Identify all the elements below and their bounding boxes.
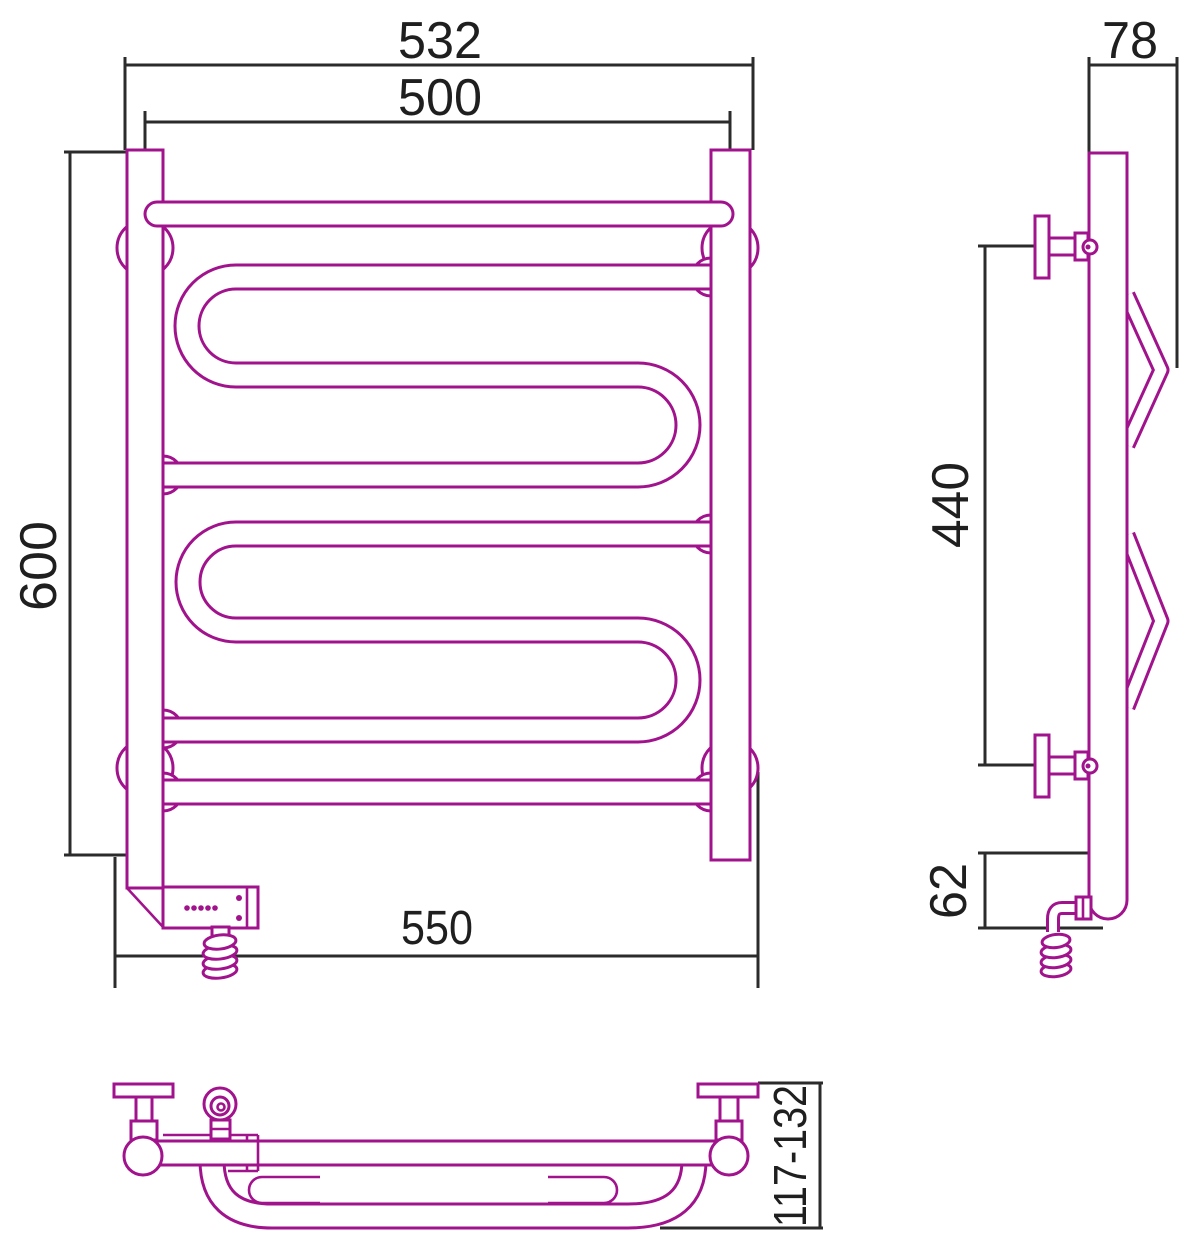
bottom-plan-view: [114, 1084, 758, 1216]
plan-bracket-right: [698, 1084, 758, 1140]
knob-dot: [1086, 764, 1091, 769]
dim-front-bracket-span-label: 550: [401, 902, 473, 955]
side-collector-tube: [1089, 153, 1127, 919]
screw-dot: [236, 915, 242, 921]
control-box: [127, 887, 258, 936]
towel-rail-drawing: 532 500 600 550 78 440 62 117-132: [0, 0, 1200, 1248]
left-collector: [127, 150, 163, 888]
power-cable-coil: [202, 933, 237, 980]
lower-serpentine: [163, 534, 711, 730]
screw-dot: [236, 895, 242, 901]
dim-front-overall-width-label: 532: [398, 12, 482, 70]
plan-serpentine-loop: [212, 1160, 694, 1216]
knob-dot: [1086, 245, 1091, 250]
technical-drawing-page: 532 500 600 550 78 440 62 117-132: [0, 0, 1200, 1248]
dim-side-bottom-offset-label: 62: [920, 863, 978, 919]
wall-bracket-bottom: [1035, 735, 1088, 797]
dim-bottom-depth-range-label: 117-132: [764, 1085, 816, 1227]
plan-left-collector: [124, 1137, 162, 1175]
side-serpentine-loops: [1127, 295, 1161, 707]
front-view: [117, 150, 758, 980]
plan-right-collector: [710, 1137, 748, 1175]
dim-front-height-label: 600: [10, 521, 68, 611]
side-cable-coil: [1040, 933, 1071, 978]
plan-cable-coil: [204, 1088, 236, 1139]
wall-bracket-top: [1035, 216, 1088, 278]
dim-side-bracket-spacing-label: 440: [922, 462, 980, 548]
dim-side-top-depth-label: 78: [1102, 12, 1158, 70]
plan-bracket-left: [114, 1084, 173, 1140]
upper-serpentine: [163, 277, 711, 475]
dim-front-rail-width-label: 500: [398, 69, 482, 127]
right-collector: [711, 150, 750, 860]
dimension-lines-side: [978, 57, 1177, 928]
